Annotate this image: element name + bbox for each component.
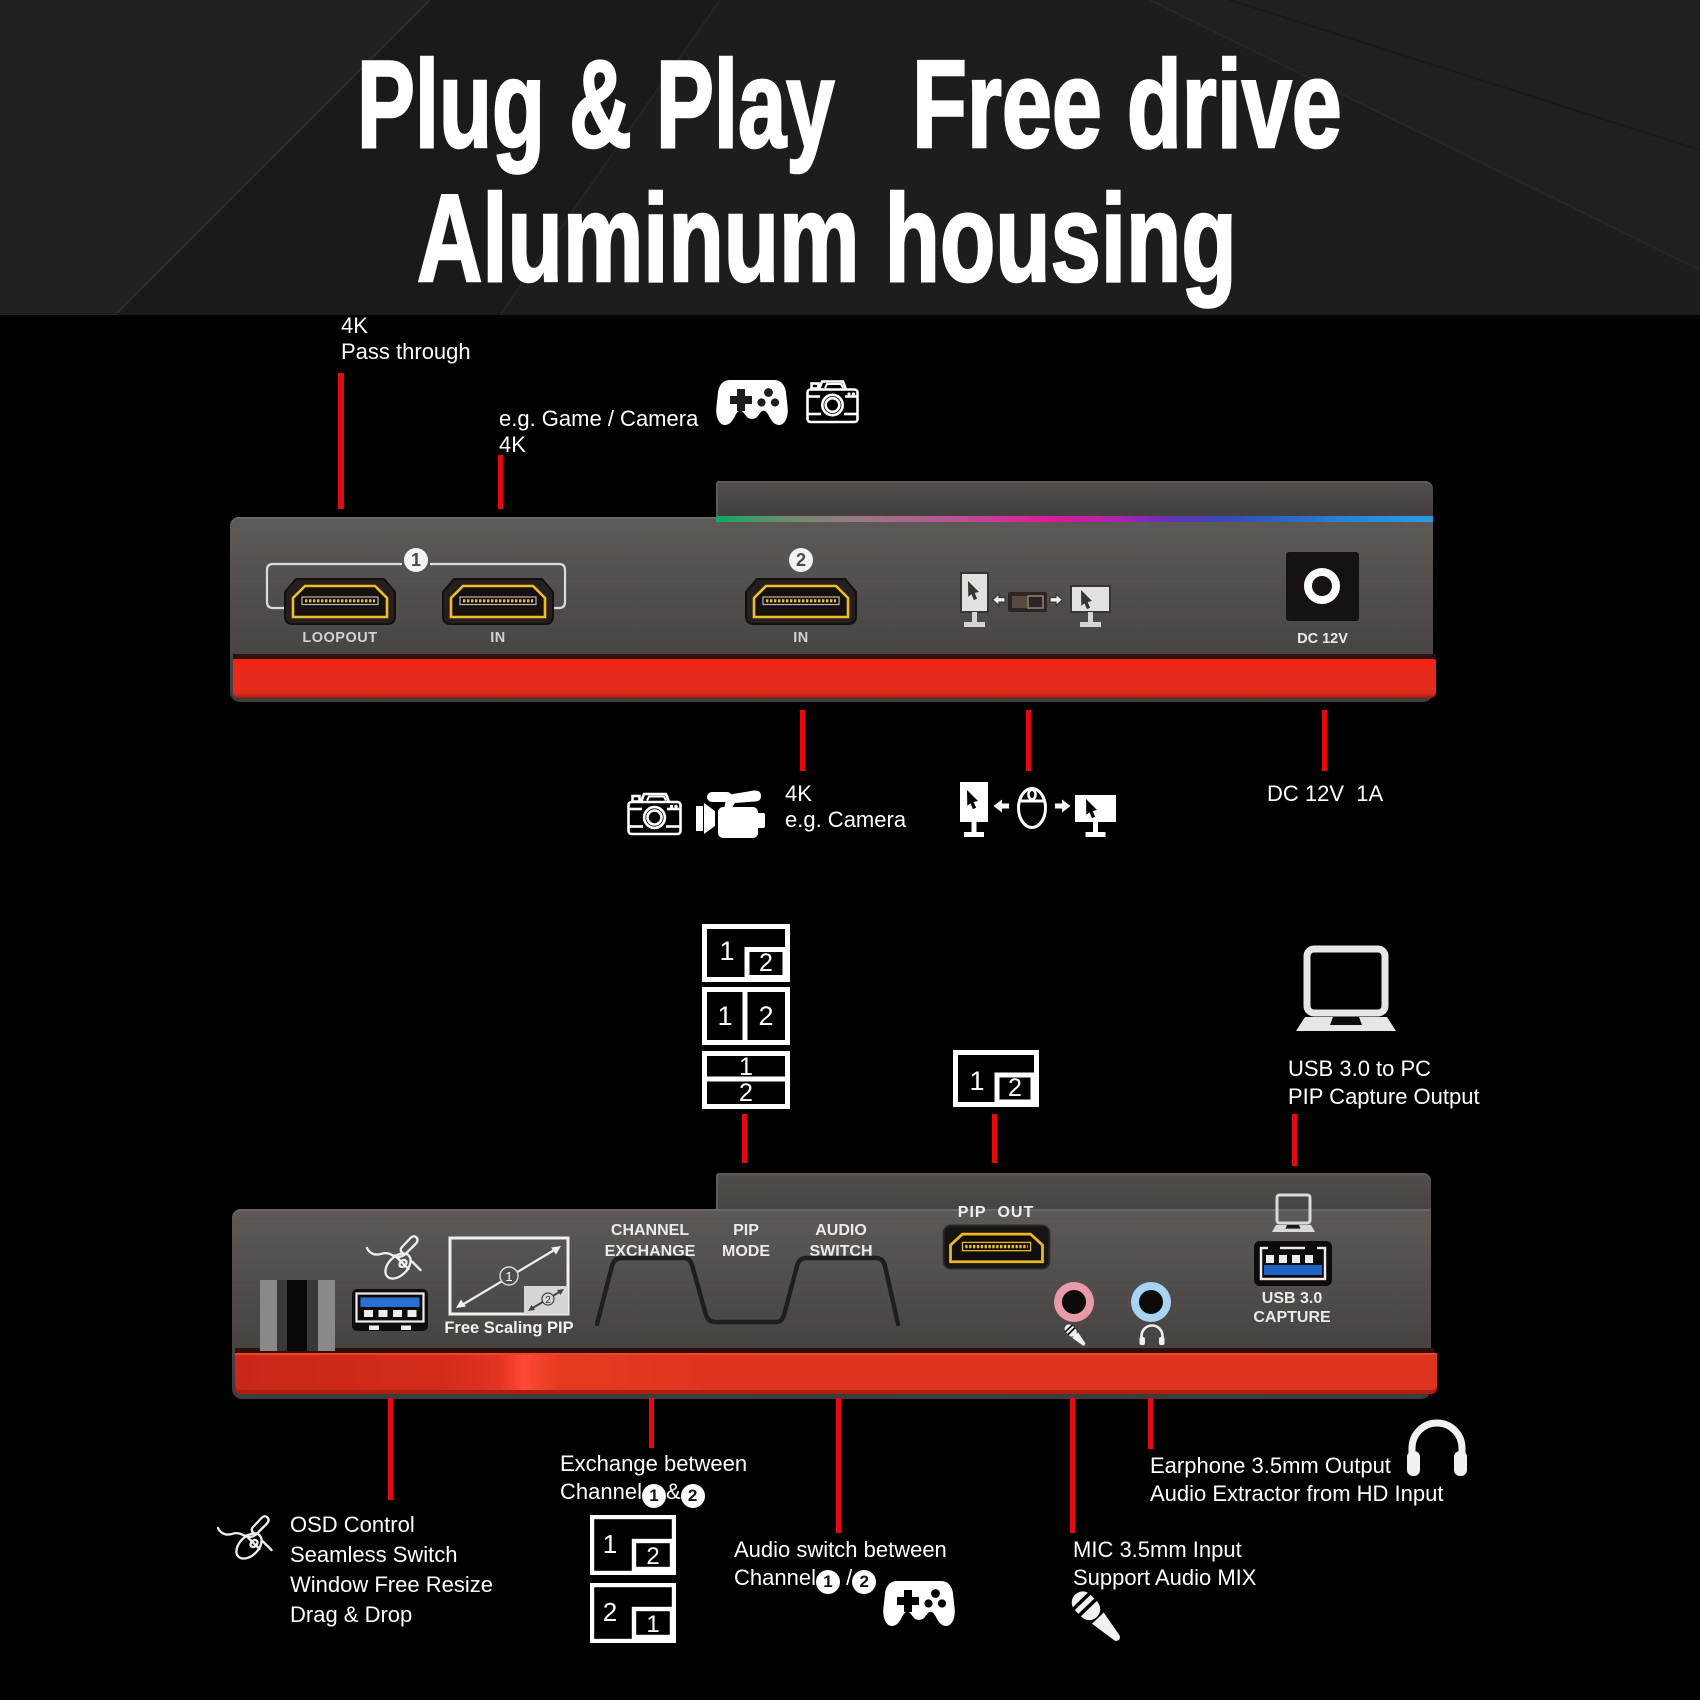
- svg-text:2: 2: [739, 1079, 753, 1107]
- svg-text:1: 1: [719, 936, 734, 966]
- svg-text:2: 2: [603, 1597, 617, 1627]
- svg-text:2: 2: [1008, 1074, 1022, 1102]
- svg-text:1: 1: [739, 1053, 753, 1081]
- svg-text:2: 2: [646, 1543, 659, 1570]
- svg-text:1: 1: [603, 1529, 617, 1559]
- svg-text:2: 2: [758, 1001, 773, 1031]
- svg-text:1: 1: [646, 1611, 659, 1638]
- svg-text:2: 2: [545, 1295, 551, 1306]
- svg-text:1: 1: [717, 1001, 732, 1031]
- svg-text:1: 1: [505, 1269, 512, 1284]
- svg-text:1: 1: [969, 1066, 984, 1096]
- svg-text:2: 2: [759, 949, 773, 977]
